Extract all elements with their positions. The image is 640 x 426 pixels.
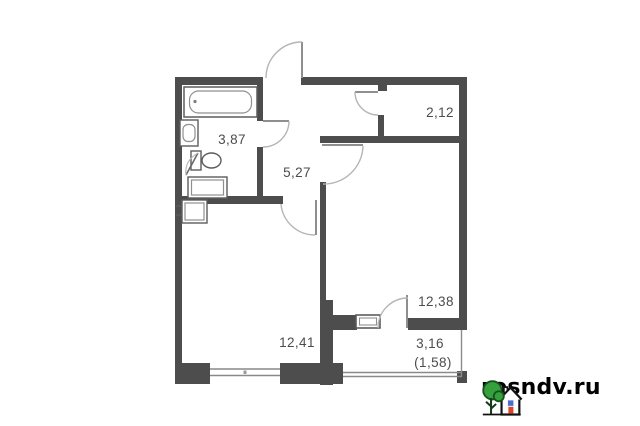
wall-segment bbox=[320, 182, 326, 302]
room-door bbox=[281, 200, 316, 235]
door-swing-arc bbox=[378, 298, 408, 328]
tree-canopy-lobe bbox=[494, 391, 504, 401]
wall-segment bbox=[320, 136, 467, 143]
room-label-bathroom: 3,87 bbox=[218, 132, 246, 147]
wall-segment bbox=[257, 147, 263, 197]
room-label-balcony: 3,16 bbox=[416, 336, 444, 351]
bathroom-door bbox=[263, 121, 289, 147]
house-door bbox=[508, 407, 513, 415]
house-icon bbox=[499, 387, 521, 414]
door-swing-arc bbox=[266, 42, 302, 78]
wall-segment bbox=[280, 363, 343, 384]
room-label-living-room: 12,38 bbox=[418, 294, 454, 309]
room-label-balcony-reduced: (1,58) bbox=[414, 355, 452, 370]
door-swing-arc bbox=[323, 146, 363, 184]
toilet-bowl bbox=[202, 153, 221, 168]
bathtub-drain bbox=[193, 100, 196, 103]
toilet bbox=[191, 151, 221, 170]
wall-segment bbox=[301, 77, 467, 85]
wall-segment bbox=[378, 115, 384, 137]
screenshot-root: 3,87 2,12 5,27 12,38 12,41 3,16 (1,58) r… bbox=[0, 0, 640, 426]
site-watermark: rosndv.ru bbox=[481, 377, 601, 399]
living-room-door bbox=[322, 145, 363, 184]
balcony-window bbox=[356, 315, 380, 328]
wall-segment bbox=[408, 318, 467, 330]
window-mullion bbox=[244, 371, 247, 375]
washing-machine bbox=[188, 177, 227, 198]
house-window bbox=[508, 400, 513, 405]
wall-segment bbox=[459, 77, 467, 330]
bathtub bbox=[184, 87, 257, 117]
wall-segment bbox=[320, 300, 333, 385]
balcony-door bbox=[378, 295, 408, 328]
wall-segment bbox=[175, 77, 263, 85]
tree-trunk bbox=[486, 398, 496, 414]
door-swing-arc bbox=[355, 92, 378, 115]
wall-segment bbox=[257, 85, 263, 121]
room-label-storage: 2,12 bbox=[426, 105, 454, 120]
door-swing-arc bbox=[263, 121, 289, 147]
wall-segment bbox=[333, 315, 357, 330]
room-label-kitchen-living: 12,41 bbox=[279, 335, 315, 350]
wall-segment bbox=[378, 85, 387, 91]
wash-basin bbox=[180, 120, 198, 146]
storage-door bbox=[355, 92, 378, 115]
main-window bbox=[210, 363, 280, 384]
entrance-door bbox=[266, 42, 302, 78]
rosndv-logo-icon bbox=[481, 377, 523, 421]
wall-segment bbox=[175, 363, 210, 384]
door-swing-arc bbox=[281, 204, 315, 235]
room-label-hallway: 5,27 bbox=[283, 165, 311, 180]
floor-plan: 3,87 2,12 5,27 12,38 12,41 3,16 (1,58) bbox=[0, 0, 640, 426]
